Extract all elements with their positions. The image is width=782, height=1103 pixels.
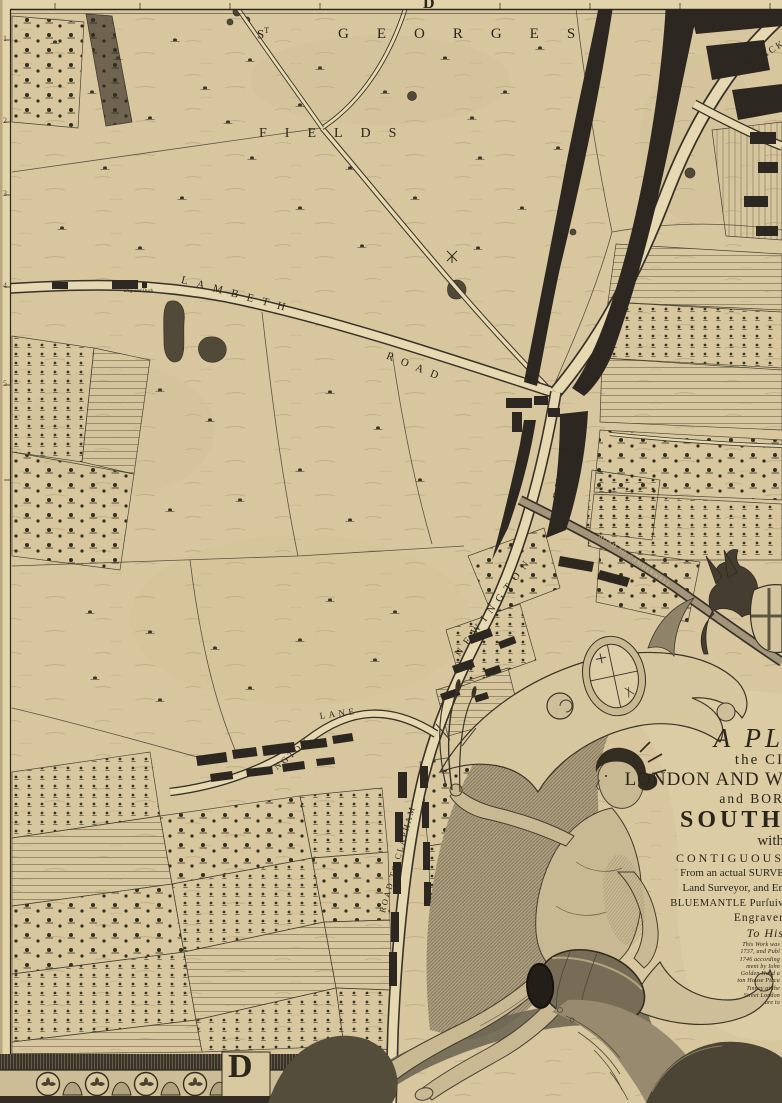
bottom-grid-letter: D [228, 1048, 253, 1086]
imprint-line: This Work was [694, 942, 780, 949]
cartouche-line-the-cities: the CI [588, 752, 782, 769]
left-margin-number-1: 1 [3, 34, 7, 43]
label-fields: FIELDS [259, 126, 414, 142]
imprint-line: ment by Iohn [694, 964, 780, 971]
cartouche-line-contiguous: CONTIGUOUS [588, 850, 782, 866]
st-sup: T [264, 26, 269, 35]
left-margin-number-2: 2 [3, 116, 7, 125]
label-st-georges-prefix: ST [257, 26, 269, 42]
cartouche-imprint-block: This Work was 1737, and Publ 1746 accord… [694, 942, 780, 1008]
label-georges: GEORGES [338, 26, 603, 43]
ornate-bottom-border [0, 1052, 310, 1103]
cartouche-line-survey: From an actual SURVE [588, 866, 782, 881]
cartouche-line-to-his: To His [588, 926, 782, 941]
top-grid-letter: D [423, 0, 435, 13]
imprint-line: ton House Picca [694, 978, 780, 985]
cartouche-line-london: LONDON AND W [588, 769, 782, 791]
imprint-line: Tinney at the [694, 986, 780, 993]
label-dog-and-duck: Dog and Duck [124, 289, 153, 294]
cartouche-line-bluemantle: BLUEMANTLE Purſuiv [588, 896, 782, 911]
imprint-line: 1746 according [694, 957, 780, 964]
imprint-line: Golden Head a [694, 971, 780, 978]
cartouche-line-a-plan: A PL [588, 724, 782, 752]
imprint-line: Street London [694, 993, 780, 1000]
cartouche-line-borough: and BOR [588, 791, 782, 807]
imprint-line: 1737, and Publ [694, 949, 780, 956]
cartouche-line-surveyor: Land Surveyor, and En [588, 881, 782, 896]
left-margin-number-3: 3 [3, 189, 7, 198]
imprint-line: are to [694, 1000, 780, 1007]
cartouche-line-engraver: Engraver [588, 911, 782, 926]
cartouche-title-block: A PL the CI LONDON AND W and BOR SOUTH w… [588, 724, 782, 941]
cartouche-line-southwark: SOUTH [588, 807, 782, 833]
antique-map-sheet: D 1 2 3 4 5 ST GEORGES FIELDS LAMBETH RO… [0, 0, 782, 1103]
cartouche-line-with: with [588, 833, 782, 850]
left-margin-number-5: 5 [3, 379, 7, 388]
left-margin-number-4: 4 [3, 281, 7, 290]
